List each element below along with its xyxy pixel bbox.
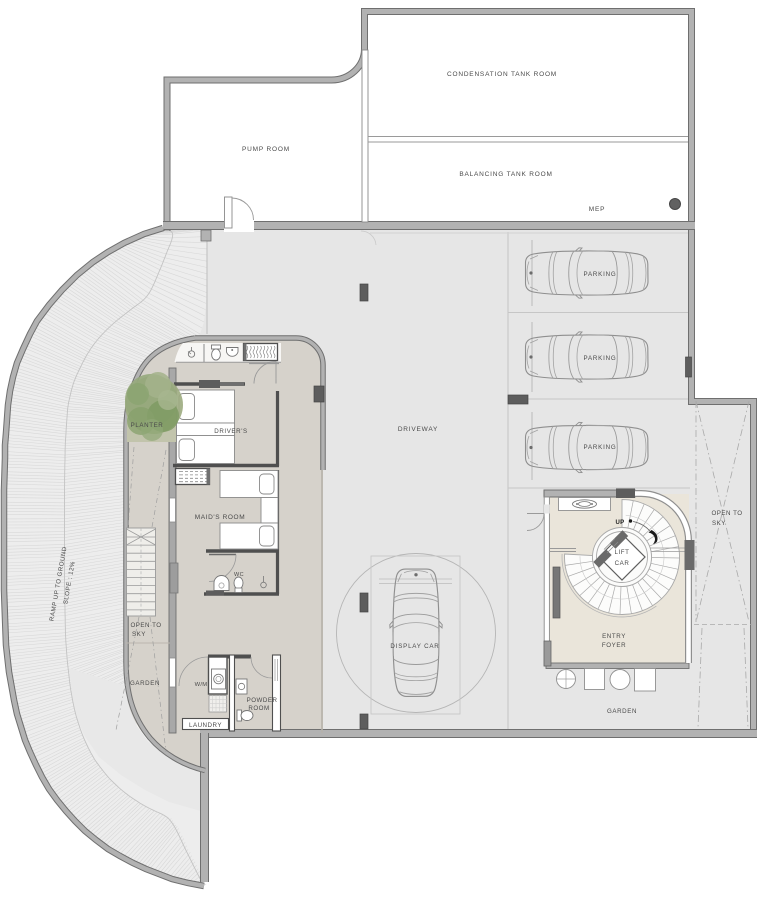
svg-text:PUMP ROOM: PUMP ROOM — [242, 146, 290, 153]
svg-text:GARDEN: GARDEN — [607, 708, 637, 715]
svg-text:ENTRY: ENTRY — [602, 633, 626, 640]
svg-text:PLANTER: PLANTER — [131, 422, 164, 429]
svg-text:CONDENSATION TANK ROOM: CONDENSATION TANK ROOM — [447, 71, 557, 78]
svg-text:OPEN TO: OPEN TO — [711, 510, 742, 517]
svg-text:ROOM: ROOM — [248, 705, 269, 712]
svg-text:DRIVER'S: DRIVER'S — [214, 428, 248, 435]
svg-text:OPEN TO: OPEN TO — [130, 622, 161, 629]
svg-text:PARKING: PARKING — [584, 355, 617, 362]
svg-text:PARKING: PARKING — [584, 444, 617, 451]
svg-text:FOYER: FOYER — [602, 642, 626, 649]
svg-text:CAR: CAR — [615, 560, 630, 567]
svg-text:MAID'S ROOM: MAID'S ROOM — [195, 514, 245, 521]
svg-text:WC: WC — [234, 572, 244, 578]
svg-text:SKY: SKY — [132, 631, 146, 638]
svg-text:DISPLAY CAR: DISPLAY CAR — [390, 643, 439, 650]
svg-text:MEP: MEP — [589, 206, 606, 213]
svg-text:GARDEN: GARDEN — [130, 680, 160, 687]
svg-text:LAUNDRY: LAUNDRY — [189, 722, 222, 729]
svg-text:DRIVEWAY: DRIVEWAY — [398, 426, 438, 433]
svg-text:PARKING: PARKING — [584, 271, 617, 278]
svg-text:BALANCING TANK ROOM: BALANCING TANK ROOM — [459, 171, 552, 178]
svg-text:SKY: SKY — [712, 520, 726, 527]
svg-text:LIFT: LIFT — [614, 549, 629, 556]
svg-text:UP: UP — [616, 520, 625, 526]
svg-text:W/M: W/M — [195, 682, 208, 688]
svg-text:POWDER: POWDER — [247, 697, 278, 704]
